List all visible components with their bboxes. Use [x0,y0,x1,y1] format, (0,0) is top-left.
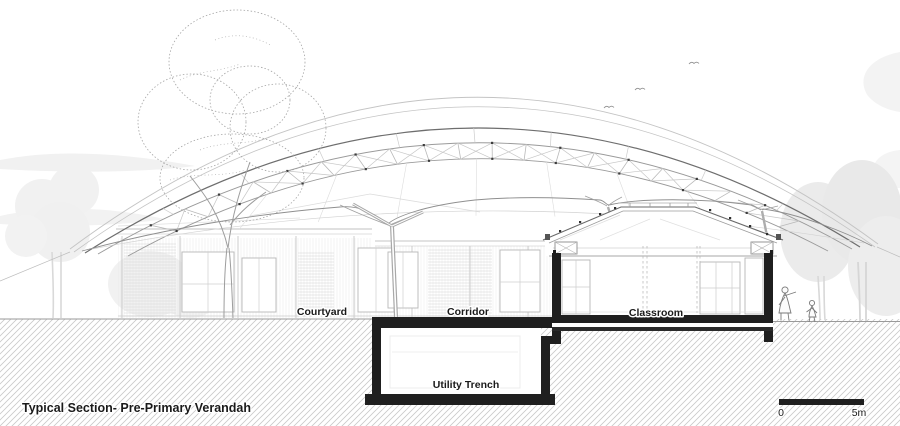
bird-icon [689,62,699,64]
scale-zero-label: 0 [778,407,784,419]
label-courtyard: Courtyard [297,306,347,318]
drawing-title: Typical Section- Pre-Primary Verandah [22,401,251,415]
utility-trench-section [365,317,561,405]
bird-icon [604,106,614,108]
child-figure [807,300,818,322]
bird-icon [635,88,645,90]
building-elevation-backdrop [116,194,553,318]
label-utility-trench: Utility Trench [433,379,500,391]
adult-figure [779,287,796,321]
label-classroom: Classroom [629,307,683,319]
birds [604,62,699,108]
background-tree-left [5,165,99,318]
label-corridor: Corridor [447,306,489,318]
scale-5m-label: 5m [852,407,867,419]
sky-clouds [0,52,900,226]
corridor-floor-slab [372,317,558,328]
people-figures [779,287,817,322]
scale-bar-rule [779,399,864,405]
tie-cable-left [0,252,70,281]
trench-bottom-slab [365,394,555,405]
section-drawing: Courtyard Corridor Classroom Utility Tre… [0,0,900,426]
trench-left-wall [372,328,381,404]
trench-right-wall [541,336,550,394]
background-trees-right [780,160,900,321]
classroom-section [543,203,783,344]
